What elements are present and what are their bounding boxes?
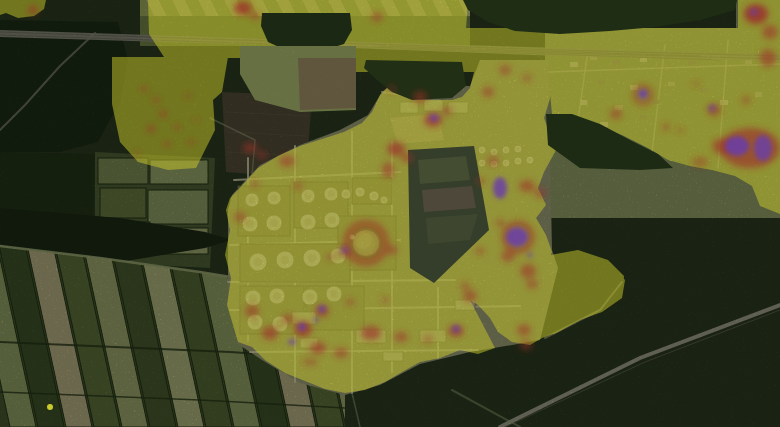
heat-hotspot-red [520,264,536,278]
heat-peak-purple [452,325,460,333]
heat-hotspot-red [243,143,257,153]
heat-peak-purple [506,227,528,247]
heat-hotspot-red [134,150,140,156]
heat-hotspot-red [334,348,348,358]
heat-hotspot-red [423,335,433,343]
heat-hotspot-red [250,12,260,20]
heat-peak-purple [288,339,296,345]
heat-hotspot-red [146,125,156,133]
heat-hotspot-red [302,358,318,366]
heat-peak-purple [527,252,533,258]
heat-peak-purple [429,114,439,122]
heat-hotspot-red [187,139,195,145]
heat-peak-purple [708,104,716,112]
heat-peak-purple [638,89,648,99]
heat-hotspot-red [520,340,532,350]
heat-hotspot-red [460,282,470,290]
heat-hotspot-red [251,180,259,188]
heat-hotspot-red [173,124,181,130]
heat-hotspot-red [487,156,499,166]
heat-hotspot-red [442,106,452,116]
heat-hotspot-red [282,314,294,324]
heat-hotspot-red [152,97,160,103]
satellite-heatmap-canvas [0,0,780,427]
heat-hotspot-red [517,324,531,336]
heat-peak-purple [318,305,326,313]
heat-hotspot-red [326,253,334,261]
heat-hotspot-red [234,1,252,15]
heat-hotspot-red [495,219,505,227]
heat-hotspot-red [482,87,494,97]
heat-hotspot-red [526,279,538,289]
heat-hotspot-red [257,151,267,159]
heat-hotspot-red [741,96,751,104]
heat-hotspot-red [401,153,413,163]
heat-peak-purple [298,323,306,331]
heat-peak-purple [340,246,350,254]
heat-hotspot-red [534,188,546,198]
heat-hotspot-red [382,162,394,178]
heat-hotspot-red [676,127,684,133]
heat-hotspot-red [692,157,708,167]
heat-hotspot-red [394,332,408,342]
heat-hotspot-red [413,91,427,103]
heat-hotspot-red [262,326,278,340]
heat-hotspot-red [692,81,700,87]
heat-hotspot-red [163,141,171,147]
heat-hotspot-red [760,49,776,67]
heat-hotspot-red [234,212,246,222]
heat-hotspot-red [361,326,381,340]
heat-hotspot-red [159,110,167,118]
heat-hotspot-red [310,342,326,354]
heat-hotspot-red [279,155,295,167]
heat-hotspot-red [522,74,532,82]
satellite-heatmap-view [0,0,780,427]
heat-hotspot-red [519,180,535,192]
heat-hotspot-red [610,109,622,119]
heat-hotspot-red [662,123,670,131]
heat-hotspot-red [388,85,396,93]
heat-hotspot-red [28,6,38,14]
heat-peak-purple [749,8,759,16]
heat-hotspot-red [140,86,148,92]
heat-peak-purple [754,135,772,161]
heat-hotspot-red [381,296,389,304]
heat-hotspot-red [293,182,303,190]
heat-hotspot-red [345,298,355,306]
heat-hotspot-red [387,142,405,156]
heat-peak-purple [493,177,507,199]
heat-peak-purple [725,136,749,156]
heat-hotspot-red [499,65,511,75]
heat-hotspot-red [184,93,192,99]
heat-hotspot-red [371,12,383,22]
heat-hotspot-red [475,247,485,255]
overlay-grain [0,0,780,427]
heat-hotspot-red [762,25,778,39]
heat-hotspot-red [463,290,477,302]
heat-peak-purple [313,317,319,323]
heat-hotspot-red [476,177,486,185]
heat-hotspot-red [193,117,199,123]
heat-hotspot-red [245,305,259,317]
